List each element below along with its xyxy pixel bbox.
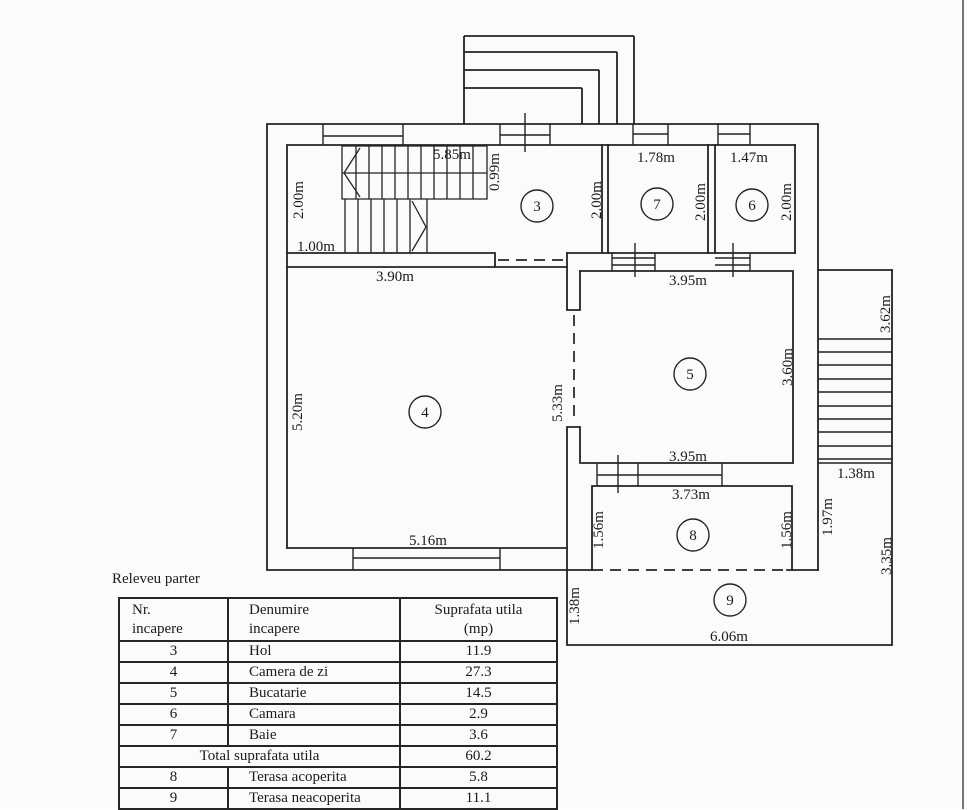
table-total-row: Total suprafata utila 60.2 bbox=[119, 746, 557, 767]
header-denumire: Denumire incapere bbox=[228, 598, 400, 641]
room-marker: 3 bbox=[521, 190, 553, 222]
window-symbols bbox=[323, 124, 750, 570]
dimension-label: 2.00m bbox=[589, 181, 605, 219]
dimension-label: 3.62m bbox=[878, 295, 894, 333]
room-number: 7 bbox=[653, 197, 661, 213]
dimension-label: 1.56m bbox=[591, 511, 607, 549]
dimension-ticks bbox=[525, 113, 733, 493]
dimension-label: 6.06m bbox=[710, 629, 748, 645]
dimension-label: 2.00m bbox=[693, 183, 709, 221]
dimension-label: 3.73m bbox=[672, 487, 710, 503]
dimension-label: 2.00m bbox=[779, 183, 795, 221]
area-table: Nr. incapere Denumire incapere Suprafata… bbox=[118, 597, 558, 810]
room-number: 9 bbox=[726, 593, 734, 609]
room-number: 4 bbox=[421, 405, 429, 421]
dimension-label: 0.99m bbox=[487, 153, 503, 191]
room-marker: 6 bbox=[736, 189, 768, 221]
room-marker: 8 bbox=[677, 519, 709, 551]
dimension-label: 1.78m bbox=[637, 150, 675, 166]
dimension-label: 3.60m bbox=[780, 348, 796, 386]
plan-caption: Releveu parter bbox=[112, 570, 200, 588]
room-marker: 9 bbox=[714, 584, 746, 616]
table-row: 7 Baie 3.6 bbox=[119, 725, 557, 746]
dimension-label: 5.33m bbox=[550, 384, 566, 422]
room-marker: 4 bbox=[409, 396, 441, 428]
dimension-label: 1.38m bbox=[837, 466, 875, 482]
entry-steps bbox=[464, 36, 634, 124]
dimension-label: 1.00m bbox=[297, 239, 335, 255]
dimension-label: 1.97m bbox=[820, 498, 836, 536]
dimension-label: 5.16m bbox=[409, 533, 447, 549]
dimension-label: 3.35m bbox=[879, 537, 895, 575]
walls bbox=[267, 124, 892, 645]
table-row: 5 Bucatarie 14.5 bbox=[119, 683, 557, 704]
dimension-label: 3.90m bbox=[376, 269, 414, 285]
room-number: 3 bbox=[533, 199, 541, 215]
header-suprafata: Suprafata utila (mp) bbox=[400, 598, 557, 641]
table-row: 3 Hol 11.9 bbox=[119, 641, 557, 662]
dashed-openings bbox=[498, 260, 787, 570]
table-row: 9 Terasa neacoperita 11.1 bbox=[119, 788, 557, 809]
dimension-label: 1.56m bbox=[779, 511, 795, 549]
room-number: 5 bbox=[686, 367, 694, 383]
table-row: 4 Camera de zi 27.3 bbox=[119, 662, 557, 683]
dimension-label: 3.95m bbox=[669, 449, 707, 465]
room-marker: 5 bbox=[674, 358, 706, 390]
dimension-label: 2.00m bbox=[291, 181, 307, 219]
table-row: 6 Camara 2.9 bbox=[119, 704, 557, 725]
room-number: 6 bbox=[748, 198, 756, 214]
scanned-floor-plan-page: 3764589 5.85m0.99m2.00m1.00m2.00m1.78m2.… bbox=[0, 0, 967, 809]
dimension-label: 1.38m bbox=[567, 587, 583, 625]
room-marker: 7 bbox=[641, 188, 673, 220]
dimension-label: 1.47m bbox=[730, 150, 768, 166]
dimension-label: 5.85m bbox=[433, 147, 471, 163]
dimension-label: 3.95m bbox=[669, 273, 707, 289]
room-number: 8 bbox=[689, 528, 697, 544]
table-header-row: Nr. incapere Denumire incapere Suprafata… bbox=[119, 598, 557, 641]
table-row: 8 Terasa acoperita 5.8 bbox=[119, 767, 557, 788]
dimension-label: 5.20m bbox=[290, 393, 306, 431]
exterior-stair-steps bbox=[818, 339, 892, 463]
header-nr: Nr. incapere bbox=[119, 598, 228, 641]
